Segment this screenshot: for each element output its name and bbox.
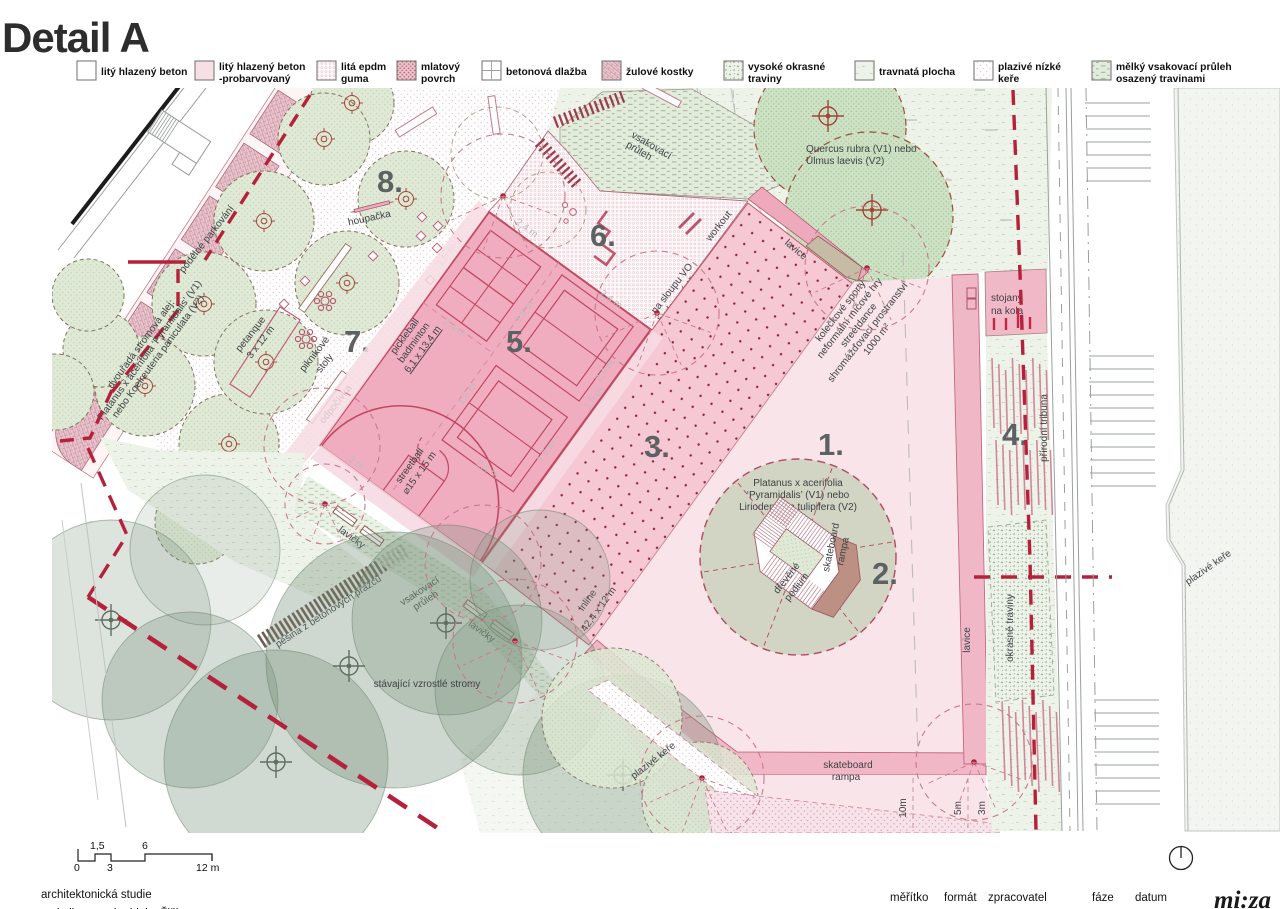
svg-text:osazený travinami: osazený travinami: [1116, 74, 1205, 85]
svg-text:stávající vzrostlé stromy: stávající vzrostlé stromy: [374, 679, 481, 690]
svg-text:architektonická studie: architektonická studie: [41, 889, 152, 901]
svg-text:-probarvovaný: -probarvovaný: [219, 74, 291, 85]
svg-text:Detail A: Detail A: [2, 14, 149, 61]
svg-text:fáze: fáze: [1092, 892, 1114, 904]
svg-text:Platanus x acerifolia: Platanus x acerifolia: [753, 478, 843, 489]
svg-text:3: 3: [107, 862, 113, 874]
svg-text:3m: 3m: [977, 801, 988, 815]
svg-text:vysoké okrasné: vysoké okrasné: [748, 62, 826, 73]
svg-text:mlatový: mlatový: [421, 62, 460, 73]
svg-text:2.: 2.: [872, 556, 898, 591]
svg-text:přírodní tribuna: přírodní tribuna: [1039, 394, 1050, 462]
svg-text:travnatá plocha: travnatá plocha: [879, 67, 955, 78]
svg-text:keře: keře: [998, 74, 1019, 85]
svg-text:3.: 3.: [644, 429, 670, 464]
svg-text:žulové kostky: žulové kostky: [626, 67, 694, 78]
svg-text:6: 6: [142, 840, 148, 852]
svg-text:0: 0: [74, 862, 80, 874]
svg-text:Ulmus laevis (V2): Ulmus laevis (V2): [806, 156, 884, 167]
svg-text:traviny: traviny: [748, 74, 782, 85]
svg-text:litý hlazený beton: litý hlazený beton: [219, 62, 305, 73]
svg-text:formát: formát: [944, 892, 977, 904]
svg-text:plazivé nízké: plazivé nízké: [998, 62, 1061, 73]
svg-text:lavice: lavice: [962, 627, 973, 653]
svg-text:rampa: rampa: [832, 772, 861, 783]
svg-text:litá epdm: litá epdm: [341, 62, 386, 73]
svg-text:guma: guma: [341, 74, 369, 85]
svg-text:litý hlazený beton: litý hlazený beton: [101, 67, 187, 78]
svg-text:měřítko: měřítko: [890, 892, 928, 904]
svg-text:Quercus rubra (V1) nebo: Quercus rubra (V1) nebo: [806, 144, 917, 155]
svg-text:12 m: 12 m: [196, 862, 220, 874]
svg-text:5.: 5.: [506, 324, 532, 359]
svg-text:mi:za: mi:za: [1214, 887, 1271, 909]
svg-text:skateboard: skateboard: [823, 760, 872, 771]
svg-text:okrasné traviny: okrasné traviny: [1005, 594, 1016, 662]
svg-text:‘Pyramidalis’ (V1) nebo: ‘Pyramidalis’ (V1) nebo: [747, 490, 850, 501]
svg-text:povrch: povrch: [421, 74, 455, 85]
svg-text:mělký vsakovací průleh: mělký vsakovací průleh: [1116, 61, 1232, 73]
svg-text:8.: 8.: [377, 164, 403, 199]
svg-text:6.: 6.: [590, 218, 616, 253]
svg-text:5m: 5m: [953, 801, 964, 815]
svg-text:1,5: 1,5: [90, 840, 105, 852]
svg-text:1.: 1.: [818, 427, 844, 462]
svg-text:zpracovatel: zpracovatel: [988, 892, 1047, 904]
svg-text:betonová dlažba: betonová dlažba: [506, 67, 587, 78]
svg-text:stojany: stojany: [991, 293, 1023, 304]
svg-text:10m: 10m: [898, 798, 909, 817]
svg-text:datum: datum: [1135, 892, 1167, 904]
